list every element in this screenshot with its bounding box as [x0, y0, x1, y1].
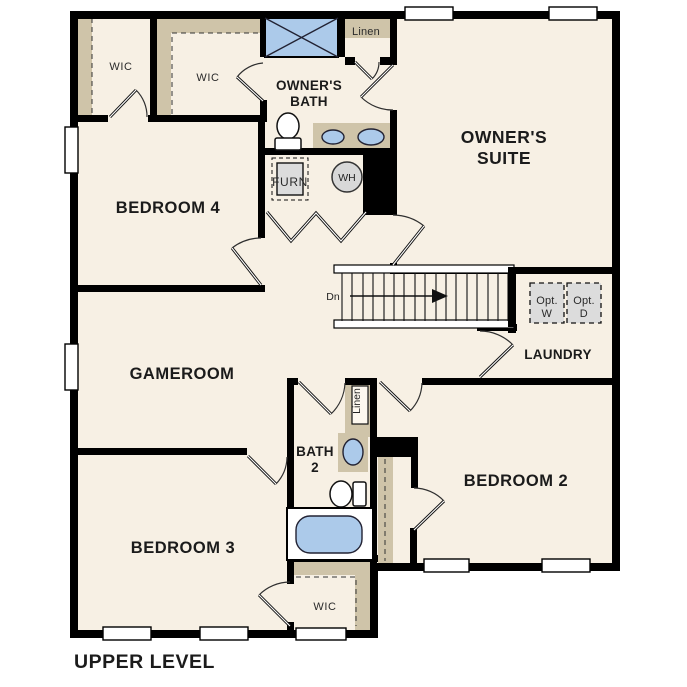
wall-segment [70, 285, 265, 292]
wic2-shelf-left [157, 18, 171, 115]
linen-bath2-label: Linen [351, 388, 363, 414]
wall-segment [148, 115, 267, 122]
plan-title: UPPER LEVEL [74, 651, 215, 673]
owners-suite-label-1: OWNER'S [461, 127, 547, 147]
window [424, 559, 469, 572]
window [200, 627, 248, 640]
bath2-toilet-fixture [330, 481, 366, 507]
wall-segment [363, 148, 397, 215]
wic-bottom-shelf-right [355, 575, 370, 630]
furnace-label: FURN [272, 175, 308, 189]
owners-toilet-fixture [275, 113, 301, 150]
wall-segment [370, 437, 418, 457]
bath2-label-1: BATH [296, 444, 334, 459]
wall-segment [345, 378, 377, 385]
water-heater-label: WH [338, 172, 356, 184]
wall-segment [410, 528, 417, 563]
wall-segment [370, 385, 377, 437]
owners-bath-label-2: BATH [290, 94, 328, 109]
wall-segment [390, 11, 397, 65]
opt-dryer-label-1: Opt. [573, 295, 595, 307]
wall-segment [508, 267, 516, 327]
floor-plan-page: Dn [0, 0, 687, 687]
wall-segment [411, 457, 418, 488]
owners-suite-label-2: SUITE [477, 148, 531, 168]
opt-washer-label-1: Opt. [536, 295, 558, 307]
wall-segment [370, 563, 378, 638]
opt-washer-label-2: W [542, 308, 553, 320]
wic2-label: WIC [196, 72, 219, 84]
window [296, 628, 346, 640]
window [103, 627, 151, 640]
linen-top-label: Linen [352, 26, 380, 38]
window [549, 7, 597, 20]
opt-dryer-label-2: D [580, 308, 589, 320]
floor-plan-drawing: Dn [0, 0, 687, 687]
bath2-label-2: 2 [311, 460, 319, 475]
bedroom3-label: BEDROOM 3 [131, 539, 235, 557]
wall-segment [70, 115, 108, 122]
gameroom-label: GAMEROOM [130, 365, 235, 383]
stair-stringer [334, 265, 514, 273]
wic2-shelf-top [157, 18, 260, 33]
wall-segment [258, 122, 265, 238]
wic1-shelf [78, 18, 92, 115]
wall-segment [612, 11, 620, 571]
wall-segment [390, 110, 397, 150]
wall-segment [70, 11, 78, 638]
wall-segment [260, 100, 267, 122]
wall-segment [345, 57, 355, 65]
wic-bottom-label: WIC [313, 601, 336, 613]
wall-segment [422, 378, 612, 385]
wic1-label: WIC [109, 61, 132, 73]
wall-segment [380, 57, 390, 65]
stairs-down-label: Dn [326, 291, 340, 303]
owners-bath-label-1: OWNER'S [276, 78, 342, 93]
window [65, 344, 78, 390]
laundry-label: LAUNDRY [524, 347, 592, 362]
wall-segment [338, 13, 345, 57]
bath2-sink-fixture [343, 439, 363, 465]
bedroom4-label: BEDROOM 4 [116, 199, 221, 217]
shower-fixture [265, 18, 338, 57]
window [65, 127, 78, 173]
window [405, 7, 453, 20]
bedroom2-label: BEDROOM 2 [464, 472, 568, 490]
stair-stringer [334, 320, 514, 328]
wall-segment [70, 448, 247, 455]
wall-segment [150, 18, 157, 118]
window [542, 559, 590, 572]
bathtub-fixture [287, 508, 373, 560]
